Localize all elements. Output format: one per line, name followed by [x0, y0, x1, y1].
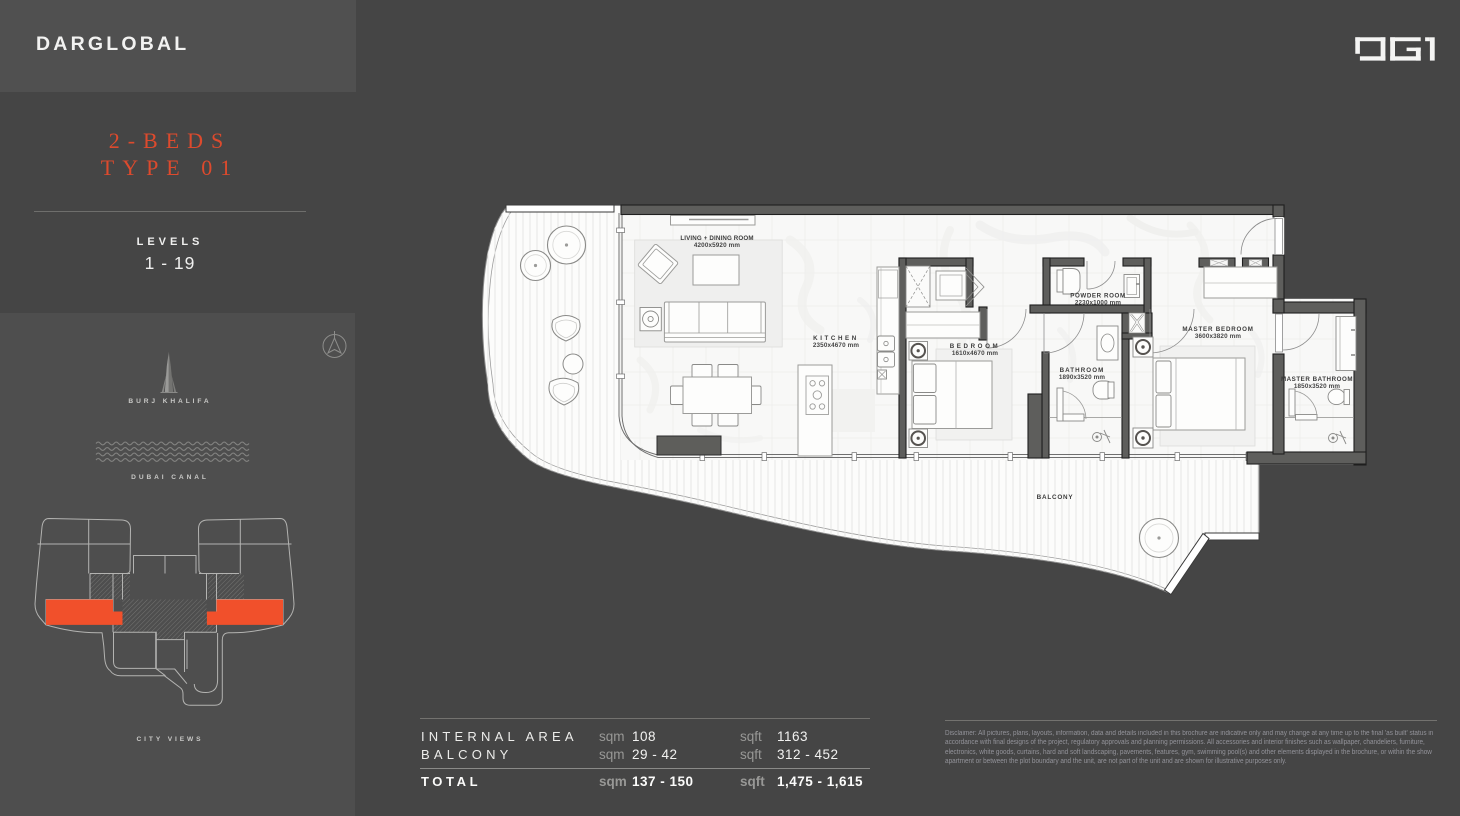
svg-text:MASTER BATHROOM: MASTER BATHROOM: [1281, 376, 1353, 383]
svg-text:1850x3520 mm: 1850x3520 mm: [1294, 383, 1341, 390]
svg-text:BEDROOM: BEDROOM: [950, 343, 1001, 350]
svg-text:1610x4670 mm: 1610x4670 mm: [952, 350, 999, 357]
svg-text:POWDER ROOM: POWDER ROOM: [1070, 293, 1125, 300]
svg-text:LIVING + DINING ROOM: LIVING + DINING ROOM: [680, 235, 753, 242]
svg-text:1890x3520 mm: 1890x3520 mm: [1059, 374, 1106, 381]
svg-text:3600x3820 mm: 3600x3820 mm: [1195, 333, 1242, 340]
svg-text:BALCONY: BALCONY: [1037, 494, 1074, 501]
svg-text:KITCHEN: KITCHEN: [813, 335, 859, 342]
svg-text:2350x4670 mm: 2350x4670 mm: [813, 342, 860, 349]
svg-text:MASTER BEDROOM: MASTER BEDROOM: [1182, 326, 1253, 333]
svg-text:2230x1000 mm: 2230x1000 mm: [1075, 300, 1122, 307]
svg-text:4200x5920 mm: 4200x5920 mm: [694, 242, 741, 249]
svg-text:BATHROOM: BATHROOM: [1060, 367, 1105, 374]
